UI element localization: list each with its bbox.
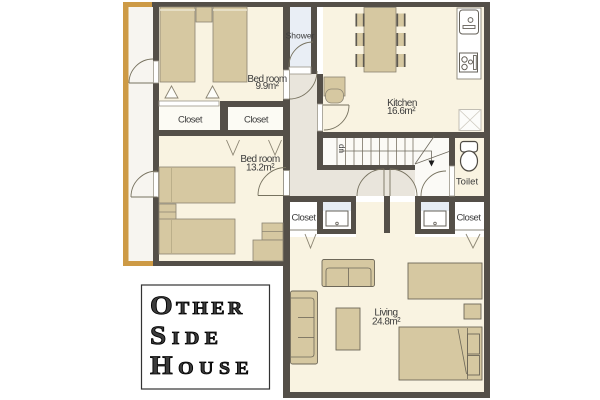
svg-text:Side: Side (150, 321, 224, 350)
svg-text:24.8m²: 24.8m² (372, 317, 401, 328)
svg-text:Closet: Closet (292, 213, 317, 224)
svg-text:Shower: Shower (286, 31, 315, 41)
svg-text:16.6m²: 16.6m² (387, 106, 416, 117)
svg-text:Closet: Closet (244, 115, 269, 126)
svg-text:9.9m²: 9.9m² (255, 81, 279, 92)
svg-text:Toilet: Toilet (456, 177, 479, 188)
svg-text:Closet: Closet (457, 213, 482, 224)
svg-text:House: House (150, 351, 254, 380)
svg-text:Other: Other (150, 291, 246, 320)
svg-text:up: up (337, 144, 346, 153)
svg-text:13.2m²: 13.2m² (246, 163, 275, 174)
svg-text:Closet: Closet (178, 115, 203, 126)
